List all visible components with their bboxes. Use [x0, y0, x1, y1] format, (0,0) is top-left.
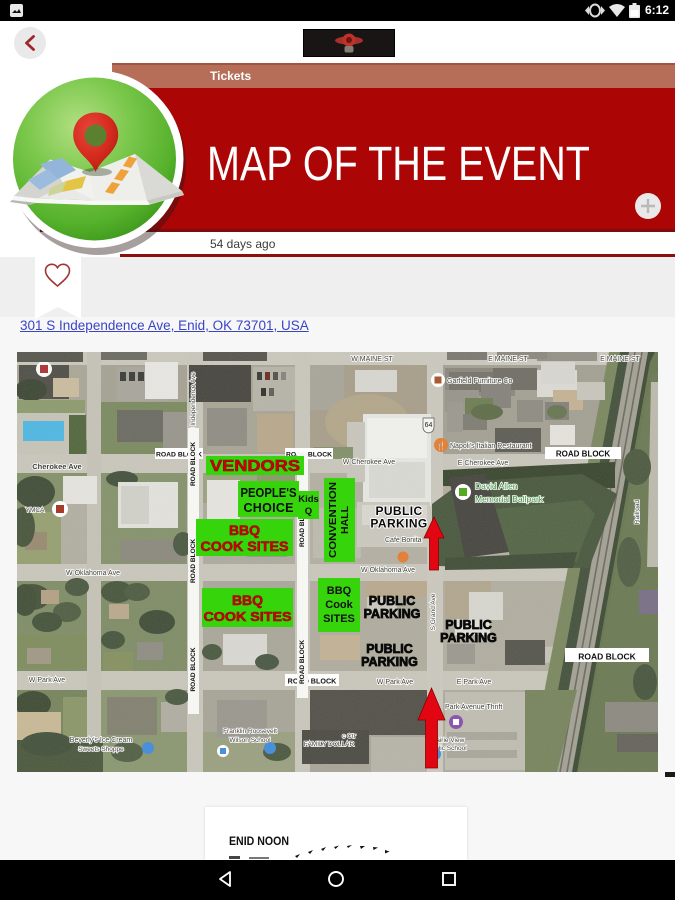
svg-text:Sweets Shoppe: Sweets Shoppe: [78, 746, 124, 753]
svg-text:CHOICE: CHOICE: [244, 501, 294, 515]
svg-text:VENDORS: VENDORS: [210, 458, 300, 475]
svg-text:COOK SITES: COOK SITES: [201, 538, 289, 554]
svg-text:BBQ: BBQ: [232, 592, 263, 608]
svg-text:ROAD BLOCK: ROAD BLOCK: [288, 676, 338, 685]
svg-text:Napoli's Italian Restaurant: Napoli's Italian Restaurant: [450, 443, 532, 450]
svg-text:YMCA: YMCA: [26, 507, 45, 514]
svg-text:PUBLIC: PUBLIC: [369, 594, 416, 608]
svg-text:ROAD BLOCK: ROAD BLOCK: [190, 442, 197, 486]
svg-text:COOK SITES: COOK SITES: [204, 609, 292, 624]
svg-text:ROAD BLOCK: ROAD BLOCK: [556, 449, 610, 458]
svg-text:Cafe Bonita: Cafe Bonita: [385, 537, 422, 544]
svg-text:ROAD BLOCK: ROAD BLOCK: [299, 640, 306, 684]
svg-text:Franklin Roosevelt: Franklin Roosevelt: [223, 728, 277, 735]
svg-text:Wilson School: Wilson School: [229, 737, 271, 744]
svg-text:🍴: 🍴: [436, 441, 446, 451]
svg-text:E Cherokee Ave: E Cherokee Ave: [458, 460, 509, 467]
svg-text:Beverly's Ice Cream: Beverly's Ice Cream: [70, 737, 133, 744]
svg-text:W Cherokee Ave: W Cherokee Ave: [343, 459, 396, 466]
svg-text:ROAD BLOCK: ROAD BLOCK: [190, 647, 197, 691]
svg-text:Railroad: Railroad: [634, 500, 641, 525]
svg-text:W Oklahoma Ave: W Oklahoma Ave: [66, 570, 120, 577]
svg-text:PARKING: PARKING: [361, 655, 418, 669]
svg-text:PARKING: PARKING: [440, 631, 497, 645]
svg-text:W MAINE ST: W MAINE ST: [351, 356, 393, 363]
svg-text:64: 64: [425, 422, 433, 429]
svg-text:HALL: HALL: [339, 505, 351, 534]
svg-text:c Ctr: c Ctr: [342, 733, 357, 740]
svg-text:E MAINE ST: E MAINE ST: [488, 356, 528, 363]
svg-text:S Independence Ave: S Independence Ave: [190, 372, 197, 432]
svg-text:W Park Ave: W Park Ave: [29, 677, 66, 684]
svg-text:BBQ: BBQ: [229, 522, 260, 538]
svg-text:Kids: Kids: [298, 494, 319, 505]
svg-text:W Park Ave: W Park Ave: [377, 679, 414, 686]
svg-text:CONVENTION: CONVENTION: [327, 482, 339, 558]
svg-text:FAMILY DOLLAR: FAMILY DOLLAR: [304, 741, 355, 748]
svg-text:S Grand Ave: S Grand Ave: [430, 593, 437, 630]
svg-text:PEOPLE'S: PEOPLE'S: [241, 486, 297, 500]
svg-text:David Allen: David Allen: [475, 481, 518, 491]
svg-text:PUBLIC: PUBLIC: [445, 618, 492, 632]
svg-text:ROAD BLOCK: ROAD BLOCK: [190, 539, 197, 583]
svg-text:Garfield Furniture Co: Garfield Furniture Co: [447, 378, 512, 385]
svg-text:W Oklahoma Ave: W Oklahoma Ave: [361, 567, 415, 574]
svg-text:SITES: SITES: [323, 613, 355, 625]
svg-text:ROAD BLOCK: ROAD BLOCK: [578, 651, 636, 661]
svg-text:PARKING: PARKING: [370, 517, 427, 531]
svg-text:Park Avenue Thrift: Park Avenue Thrift: [445, 704, 502, 711]
svg-text:Cook: Cook: [325, 599, 353, 611]
svg-text:PUBLIC: PUBLIC: [366, 642, 413, 656]
svg-text:Cherokee Ave: Cherokee Ave: [32, 462, 81, 471]
svg-text:E MAINE ST: E MAINE ST: [600, 356, 640, 363]
svg-text:E Park Ave: E Park Ave: [457, 679, 492, 686]
svg-text:PARKING: PARKING: [364, 607, 421, 621]
svg-text:BBQ: BBQ: [327, 585, 352, 597]
svg-text:Q: Q: [305, 506, 312, 517]
svg-text:Memorial Ballpark: Memorial Ballpark: [475, 494, 544, 504]
